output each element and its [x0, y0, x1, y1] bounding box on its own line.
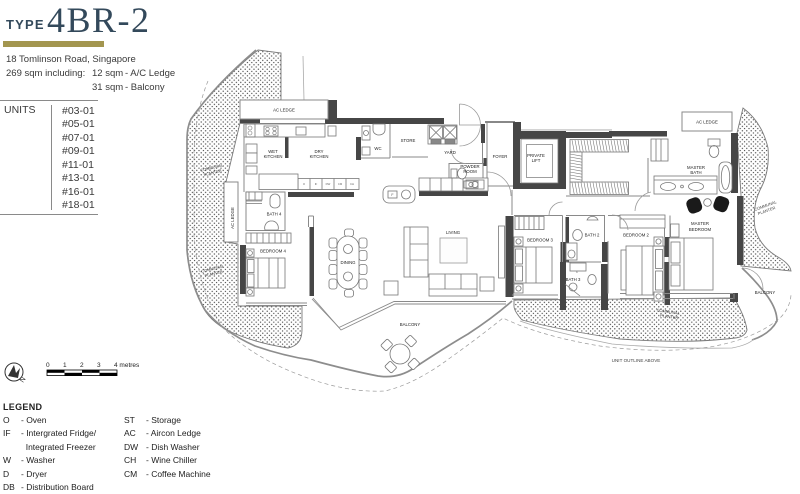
svg-text:IF: IF: [315, 182, 318, 186]
svg-text:UNIT OUTLINE ABOVE: UNIT OUTLINE ABOVE: [612, 358, 661, 363]
svg-text:3: 3: [97, 362, 101, 369]
svg-text:4 metres: 4 metres: [114, 362, 140, 369]
svg-text:KITCHEN: KITCHEN: [264, 154, 283, 159]
svg-text:BATH 3: BATH 3: [566, 277, 581, 282]
svg-text:AC LEDGE: AC LEDGE: [696, 120, 718, 125]
svg-text:LIVING: LIVING: [446, 230, 461, 235]
svg-text:BALCONY: BALCONY: [400, 322, 421, 327]
svg-text:BALCONY: BALCONY: [755, 290, 776, 295]
svg-text:2: 2: [80, 362, 84, 369]
svg-text:AC LEDGE: AC LEDGE: [230, 207, 235, 229]
svg-text:CM: CM: [338, 182, 343, 186]
svg-text:DINING: DINING: [340, 260, 356, 265]
svg-text:BEDROOM 2: BEDROOM 2: [623, 233, 649, 238]
svg-text:STORE: STORE: [401, 138, 416, 143]
svg-text:KITCHEN: KITCHEN: [310, 154, 329, 159]
svg-text:F: F: [391, 193, 393, 197]
svg-text:ROOM: ROOM: [463, 169, 477, 174]
svg-text:YARD: YARD: [444, 150, 456, 155]
svg-text:BATH: BATH: [690, 170, 701, 175]
svg-text:N: N: [19, 376, 28, 384]
svg-text:DW: DW: [326, 182, 331, 186]
svg-text:MASTER: MASTER: [691, 221, 709, 226]
svg-text:BEDROOM 3: BEDROOM 3: [527, 238, 553, 243]
svg-text:BEDROOM: BEDROOM: [689, 227, 712, 232]
svg-text:BEDROOM 4: BEDROOM 4: [260, 249, 286, 254]
svg-text:CH: CH: [350, 182, 354, 186]
svg-text:WC: WC: [374, 146, 381, 151]
svg-text:BATH 2: BATH 2: [585, 233, 600, 238]
svg-text:LIFT: LIFT: [532, 158, 541, 163]
svg-text:AC LEDGE: AC LEDGE: [273, 108, 295, 113]
svg-text:0: 0: [46, 362, 50, 369]
svg-text:1: 1: [63, 362, 67, 369]
svg-text:BATH 4: BATH 4: [267, 212, 282, 217]
svg-text:FOYER: FOYER: [493, 154, 508, 159]
